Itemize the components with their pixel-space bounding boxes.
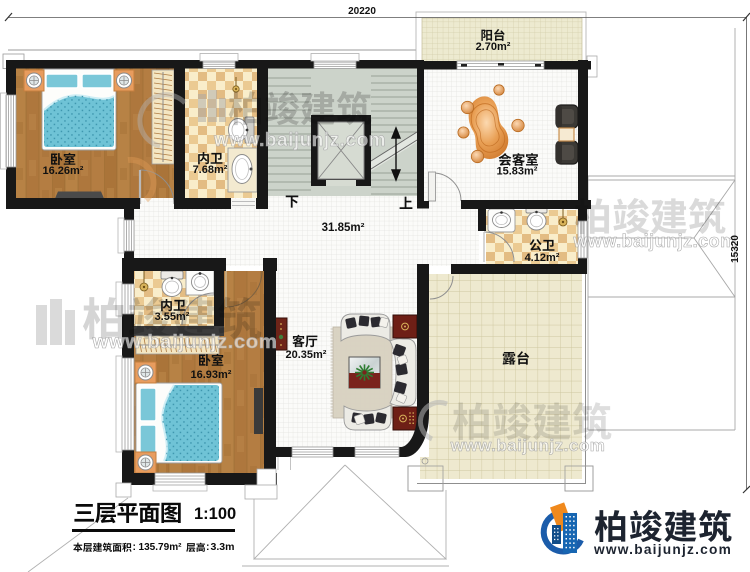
svg-text:www.baijunjz.com: www.baijunjz.com	[572, 231, 736, 251]
svg-text:1:100: 1:100	[194, 505, 236, 523]
svg-text::: :	[206, 541, 210, 553]
svg-text:www.baijunjz.com: www.baijunjz.com	[450, 436, 606, 455]
svg-text:31.85m²: 31.85m²	[322, 222, 365, 234]
svg-text:www.baijunjz.com: www.baijunjz.com	[213, 130, 386, 151]
svg-text::: :	[133, 541, 137, 553]
svg-text:www.baijunjz.com: www.baijunjz.com	[91, 332, 277, 353]
svg-text:15.83m²: 15.83m²	[497, 166, 538, 178]
svg-text:2.70m²: 2.70m²	[476, 41, 511, 53]
svg-text:4.12m²: 4.12m²	[525, 252, 560, 264]
svg-text:3.3m: 3.3m	[211, 541, 235, 553]
svg-text:20.35m²: 20.35m²	[286, 349, 327, 361]
svg-text:16.93m²: 16.93m²	[191, 369, 232, 381]
svg-text:www.baijunjz.com: www.baijunjz.com	[593, 542, 732, 557]
svg-text:16.26m²: 16.26m²	[43, 165, 84, 177]
svg-text:135.79m²: 135.79m²	[139, 541, 182, 553]
svg-text:15320: 15320	[730, 235, 741, 263]
svg-text:20220: 20220	[348, 6, 376, 17]
svg-text:3.55m²: 3.55m²	[155, 311, 190, 323]
svg-text:7.68m²: 7.68m²	[193, 164, 228, 176]
